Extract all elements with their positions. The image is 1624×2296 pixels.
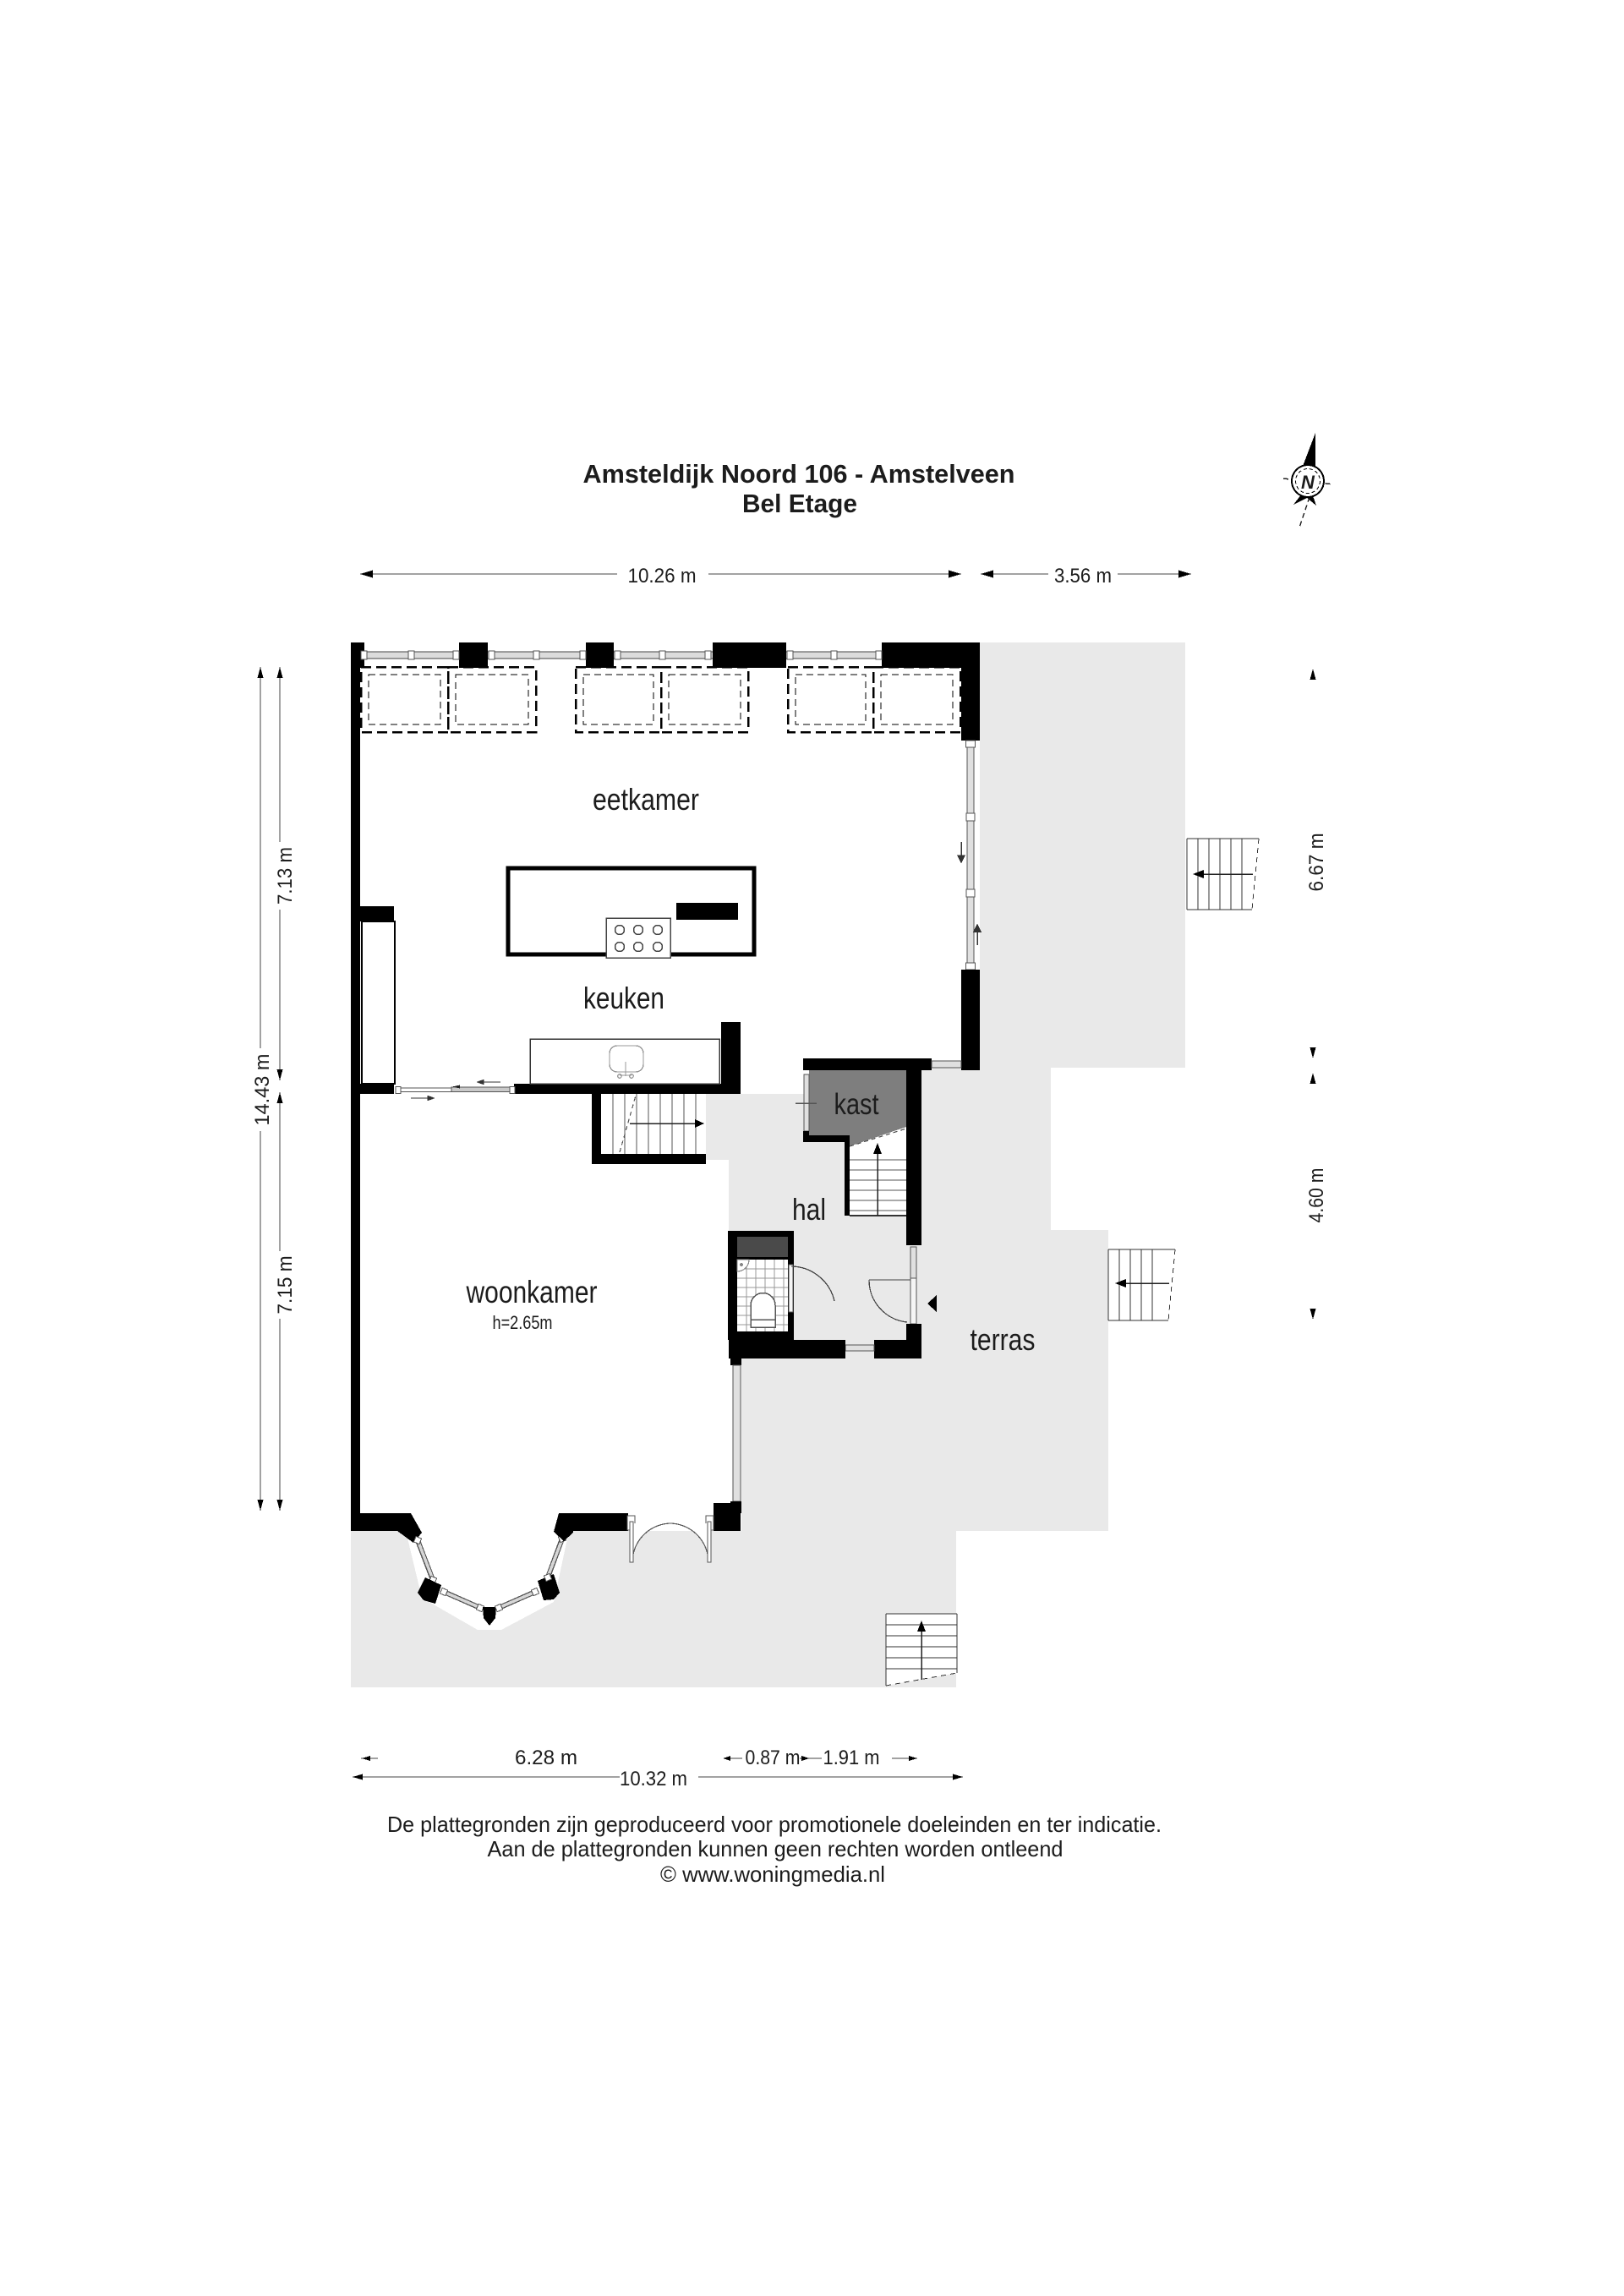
svg-text:hal: hal <box>792 1192 826 1227</box>
svg-text:N: N <box>1301 472 1315 493</box>
svg-text:4.60 m: 4.60 m <box>1305 1168 1328 1223</box>
svg-text:Amsteldijk Noord 106 - Amstelv: Amsteldijk Noord 106 - Amstelveen <box>583 459 1015 489</box>
svg-text:terras: terras <box>971 1322 1036 1357</box>
svg-text:kast: kast <box>834 1088 879 1121</box>
svg-text:De plattegronden zijn geproduc: De plattegronden zijn geproduceerd voor … <box>387 1812 1162 1837</box>
svg-text:eetkamer: eetkamer <box>593 782 699 817</box>
svg-text:Bel Etage: Bel Etage <box>742 489 857 518</box>
svg-text:1.91 m: 1.91 m <box>823 1747 880 1769</box>
svg-text:© www.woningmedia.nl: © www.woningmedia.nl <box>660 1861 885 1887</box>
svg-text:7.15 m: 7.15 m <box>274 1256 297 1315</box>
svg-text:3.56 m: 3.56 m <box>1054 565 1112 588</box>
svg-text:h=2.65m: h=2.65m <box>493 1312 553 1333</box>
svg-text:10.26 m: 10.26 m <box>628 565 697 588</box>
svg-text:0.87 m: 0.87 m <box>746 1747 801 1769</box>
svg-text:6.67 m: 6.67 m <box>1305 834 1328 892</box>
svg-text:14.43 m: 14.43 m <box>251 1054 274 1126</box>
svg-text:6.28 m: 6.28 m <box>515 1747 577 1769</box>
svg-text:woonkamer: woonkamer <box>466 1275 598 1309</box>
svg-text:Aan de plattegronden kunnen ge: Aan de plattegronden kunnen geen rechten… <box>488 1836 1064 1861</box>
svg-text:10.32 m: 10.32 m <box>620 1768 687 1790</box>
svg-text:keuken: keuken <box>583 981 664 1015</box>
svg-text:7.13 m: 7.13 m <box>274 847 297 905</box>
